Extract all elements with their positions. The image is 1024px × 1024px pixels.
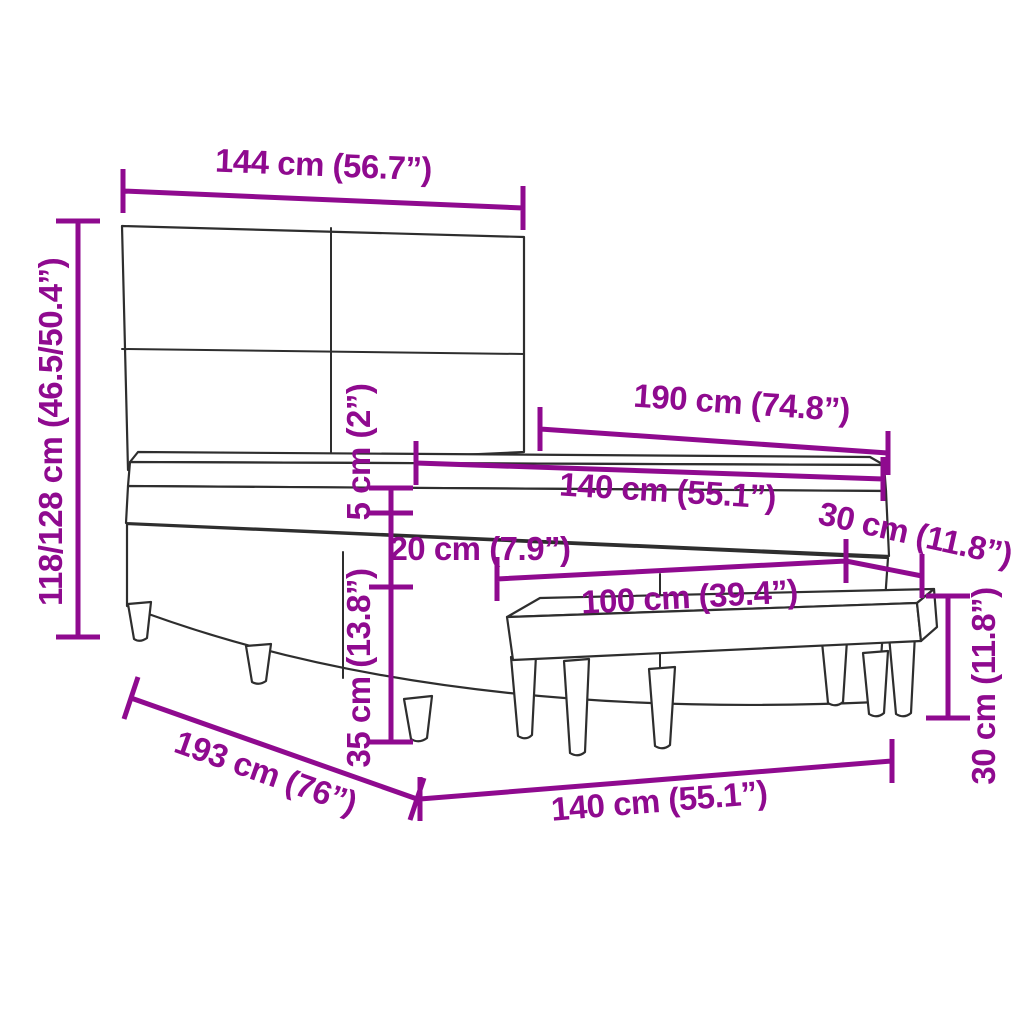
- dim-bed-width: 140 cm (55.1”): [420, 739, 892, 828]
- bench-leg-back-mid: [649, 667, 675, 748]
- bench-leg-back-left: [564, 659, 589, 755]
- bench-leg-front-right: [889, 634, 915, 716]
- dim-headboard-width: 144 cm (56.7”): [123, 141, 523, 230]
- bench-leg-mid-right: [863, 651, 888, 716]
- dim-line-bed-depth: [124, 677, 424, 820]
- dim-label-headboard-width: 144 cm (56.7”): [214, 141, 432, 187]
- dim-label-mattress-height: 20 cm (7.9”): [389, 530, 570, 567]
- dim-bench-height: 30 cm (11.8”): [926, 587, 1002, 784]
- dim-headboard-height: 118/128 cm (46.5/50.4”): [32, 221, 100, 637]
- bed-leg-1: [128, 602, 151, 641]
- dim-label-bench-height: 30 cm (11.8”): [965, 587, 1002, 784]
- dim-label-headboard-height: 118/128 cm (46.5/50.4”): [32, 258, 69, 606]
- headboard: [122, 226, 524, 470]
- bench-leg-front-left: [511, 655, 536, 738]
- dim-label-topper-height: 5 cm (2”): [340, 384, 377, 521]
- dim-label-base-height: 35 cm (13.8”): [340, 569, 377, 768]
- bed-dimension-diagram: 144 cm (56.7”) 118/128 cm (46.5/50.4”) 1…: [0, 0, 1024, 1024]
- bed-leg-2: [246, 644, 271, 684]
- dim-label-bed-width: 140 cm (55.1”): [550, 773, 769, 827]
- dim-bed-depth: 193 cm (76”): [124, 677, 424, 821]
- dim-label-bed-depth: 193 cm (76”): [170, 723, 362, 821]
- dim-label-bed-length: 190 cm (74.8”): [632, 377, 851, 429]
- bed-leg-3: [404, 696, 432, 741]
- diagram-canvas: 144 cm (56.7”) 118/128 cm (46.5/50.4”) 1…: [0, 0, 1024, 1024]
